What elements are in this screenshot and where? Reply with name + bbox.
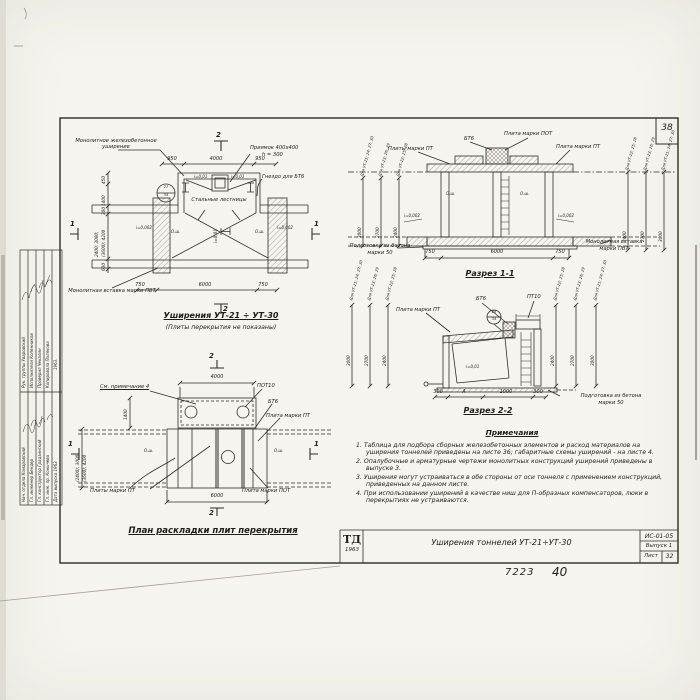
stamp-role: Дата выпуска bbox=[53, 473, 58, 502]
stamp-role: Гл. инж. пр. bbox=[45, 477, 50, 502]
label-podgotovka: Подготовка из бетона bbox=[562, 394, 660, 399]
dim-label: 2400 bbox=[383, 355, 387, 366]
dim-label: 2400 bbox=[623, 231, 627, 242]
stamp-year: 1963. bbox=[54, 359, 58, 370]
label-plity-pt: Плиты марки ПТ bbox=[388, 146, 433, 152]
stamp-row: Рук. группы Уваровский bbox=[22, 337, 26, 388]
dim-label: 6000 bbox=[483, 250, 511, 255]
stamp-row: Гл. инж. пр. Конычева bbox=[46, 455, 50, 502]
stamp-row: Проверил Чекалин bbox=[38, 348, 42, 388]
dim-label: 1000 bbox=[496, 390, 516, 395]
stamp-row: Копировала Полякова bbox=[46, 341, 50, 388]
detail-marker-number: 34 bbox=[487, 318, 501, 322]
slope-label: i=0,01 bbox=[194, 175, 207, 180]
section-flag-1: 1 bbox=[314, 221, 319, 228]
dim-label: 6000 bbox=[192, 283, 218, 288]
slope-label: i=0,002 bbox=[277, 226, 293, 231]
stamp-role: Нач. отдела bbox=[21, 477, 26, 502]
label-plita-pt: Плита марки ПТ bbox=[556, 144, 600, 150]
slope-label: i=0,01 bbox=[466, 365, 479, 370]
dim-label: 300 bbox=[102, 207, 106, 215]
stamp-row: Исполнители Копенников bbox=[30, 333, 34, 388]
title-block-logo-year: 1963 bbox=[341, 548, 363, 554]
section-flag-1: 1 bbox=[70, 221, 75, 228]
dim-label: 2700 bbox=[365, 355, 369, 366]
label-vstavka: марки ПВТ bbox=[566, 247, 662, 252]
handwritten-number: 40 bbox=[552, 565, 567, 579]
title-block-title: Уширения тоннелей УТ-21÷УТ-30 bbox=[365, 539, 638, 547]
dim-label: 6000 bbox=[204, 494, 230, 499]
slope-label: i=0,01 bbox=[231, 175, 244, 180]
dim-label: 2400 bbox=[551, 355, 555, 366]
label-podgotovka: марки 50 bbox=[562, 401, 660, 406]
stamp-row: Гл. инженер Бендер bbox=[30, 459, 34, 502]
label-vstavka: Монолитная вставка bbox=[566, 240, 662, 245]
label-plita-pot: Плита марки ПОТ bbox=[242, 488, 290, 494]
label-plity-pt: Плиты марки ПТ bbox=[90, 488, 135, 494]
section-flag-1: 1 bbox=[68, 441, 73, 448]
stamp-name: Копенников bbox=[29, 333, 34, 358]
stamp-role: Гл. инженер bbox=[29, 476, 34, 502]
title-block-sheet-number: 32 bbox=[662, 554, 677, 560]
stamp-name: 1963 bbox=[53, 461, 58, 471]
dim-label: 4000 bbox=[204, 375, 230, 380]
axis-mark: О.ш. bbox=[171, 230, 180, 235]
stamp-row: Нач. отдела Комаровский bbox=[22, 447, 26, 502]
label-bt6: БТ6 bbox=[464, 136, 474, 142]
stamp-name: Градзинский bbox=[37, 440, 42, 467]
dim-label: А bbox=[456, 390, 472, 395]
dim-label: 750 bbox=[550, 250, 570, 255]
dim-label: 300 bbox=[430, 390, 446, 395]
axis-mark: О.ш. bbox=[446, 192, 455, 197]
dim-label: 950 bbox=[162, 157, 182, 162]
axis-mark: О.ш. bbox=[144, 449, 153, 454]
plan-top-subtitle: (Плиты перекрытия не показаны) bbox=[134, 324, 308, 331]
dim-label: 1400 bbox=[102, 195, 106, 206]
label-bt6: БТ6 bbox=[476, 296, 486, 302]
detail-marker-number: 27 bbox=[160, 186, 172, 190]
dim-label: (2400); 3000; bbox=[76, 453, 80, 482]
title-block-doc-code: ИС-01-05 bbox=[641, 534, 677, 540]
label-plita-pot: Плита марки ПОТ bbox=[504, 131, 552, 137]
title-block-logo: ТД bbox=[341, 533, 363, 546]
scan-artifacts bbox=[0, 0, 696, 700]
stamp-role: Рук. группы bbox=[21, 363, 26, 388]
label-steel-ladders: Стальные лестницы bbox=[190, 197, 248, 203]
dim-label: 2400; 3000; bbox=[95, 232, 99, 257]
title-block-sheet-label: Лист bbox=[641, 554, 661, 560]
plan-top-title: Уширения УТ-21 ÷ УТ-30 bbox=[145, 311, 297, 321]
dim-label: 4000 bbox=[203, 157, 229, 162]
label-pit: Приямок 400х400 bbox=[250, 145, 298, 151]
label-podgotovka: Подготовка из бетона bbox=[336, 244, 424, 249]
axis-mark: О.ш. bbox=[520, 192, 529, 197]
axis-mark: О.ш. bbox=[255, 230, 264, 235]
label-monolithic-insert: Монолитная вставка марки ПВТ bbox=[66, 288, 158, 294]
dim-label: 950 bbox=[250, 157, 270, 162]
drawing-linework bbox=[0, 0, 700, 700]
label-plita-pt: Плита марки ПТ bbox=[396, 307, 440, 313]
stamp-role: Гл. конструктор bbox=[37, 468, 42, 502]
section-flag-1: 1 bbox=[314, 441, 319, 448]
detail-marker-number: 28 bbox=[487, 311, 501, 315]
slope-label: i=0,002 bbox=[136, 226, 152, 231]
dim-label: 3000 bbox=[591, 355, 595, 366]
inventory-number: 7223 bbox=[505, 567, 534, 579]
section-flag-2: 2 bbox=[209, 510, 214, 517]
label-plita-pt: Плита марки ПТ bbox=[266, 413, 310, 419]
dim-label: 2700 bbox=[571, 355, 575, 366]
notes-list: 1. Таблица для подбора сборных железобет… bbox=[356, 442, 668, 506]
slope-label: i=0,002 bbox=[404, 214, 420, 219]
dim-label: 750 bbox=[253, 283, 273, 288]
title-block-issue: Выпуск 1 bbox=[641, 544, 677, 550]
section-flag-2: 2 bbox=[216, 132, 221, 139]
dim-label: 750 bbox=[420, 250, 440, 255]
stamp-name: Чекалин bbox=[37, 348, 42, 366]
dim-label: 2700 bbox=[376, 227, 380, 238]
stamp-role: Копировала bbox=[45, 363, 50, 388]
section-flag-2: 2 bbox=[209, 353, 214, 360]
stamp-name: Полякова bbox=[45, 341, 50, 361]
section-2-title: Разрез 2-2 bbox=[446, 406, 530, 416]
stamp-role: Исполнители bbox=[29, 360, 34, 388]
stamp-name: Комаровский bbox=[21, 447, 26, 475]
note-item: 2. Опалубочные и арматурные чертежи моно… bbox=[356, 458, 668, 473]
label-bt6: БТ6 bbox=[268, 399, 278, 405]
dim-label: 750 bbox=[130, 283, 150, 288]
stamp-row: Дата выпуска 1963 bbox=[54, 461, 58, 502]
dim-label: 3000 bbox=[347, 355, 351, 366]
dim-label: 2400 bbox=[394, 227, 398, 238]
stamp-name: Уваровский bbox=[21, 337, 26, 361]
plan-bottom-title: План раскладки плит перекрытия bbox=[118, 526, 308, 536]
label-pot10: ПОТ10 bbox=[257, 383, 275, 389]
dim-label: 300 bbox=[530, 390, 546, 395]
stamp-name: Бендер bbox=[29, 459, 34, 475]
label-see-note: См. примечание 4 bbox=[100, 384, 149, 390]
label-podgotovka: марки 50 bbox=[336, 251, 424, 256]
notes-title: Примечания bbox=[452, 429, 572, 438]
note-item: 1. Таблица для подбора сборных железобет… bbox=[356, 442, 668, 457]
note-item: 3. Уширения могут устраиваться в обе сто… bbox=[356, 474, 668, 489]
note-item: 4. При использовании уширений в качестве… bbox=[356, 490, 668, 505]
stamp-row: Гл. конструктор Градзинский bbox=[38, 440, 42, 502]
drawing-sheet: 38 7223 40 ТД 1963 Уширения тоннелей УТ-… bbox=[0, 0, 700, 700]
dim-label: (3600); 4200 bbox=[83, 455, 87, 482]
dim-label: 3000 bbox=[659, 231, 663, 242]
section-2-linework bbox=[350, 301, 598, 399]
dim-label: 3000 bbox=[358, 227, 362, 238]
slope-label: i=0,002 bbox=[558, 214, 574, 219]
stamp-role: Проверил bbox=[37, 367, 42, 388]
dim-label: 600 bbox=[102, 263, 106, 271]
detail-marker-number: 34 bbox=[160, 194, 172, 198]
dim-label: (3600); 4200 bbox=[102, 230, 106, 257]
label-socket-bt6: Гнездо для БТ6 bbox=[262, 174, 304, 180]
axis-mark: О.ш. bbox=[274, 449, 283, 454]
dim-label: 2700 bbox=[641, 231, 645, 242]
label-monolithic-widening: Монолитное железобетонное уширение bbox=[68, 138, 164, 150]
label-pt10: ПТ10 bbox=[527, 294, 541, 300]
stamp-name: Конычева bbox=[45, 455, 50, 476]
slope-label: i=0,01 bbox=[214, 229, 218, 243]
section-1-title: Разрез 1-1 bbox=[448, 269, 532, 279]
dim-label: 1400 bbox=[124, 409, 128, 420]
dim-label: 450 bbox=[102, 176, 106, 184]
